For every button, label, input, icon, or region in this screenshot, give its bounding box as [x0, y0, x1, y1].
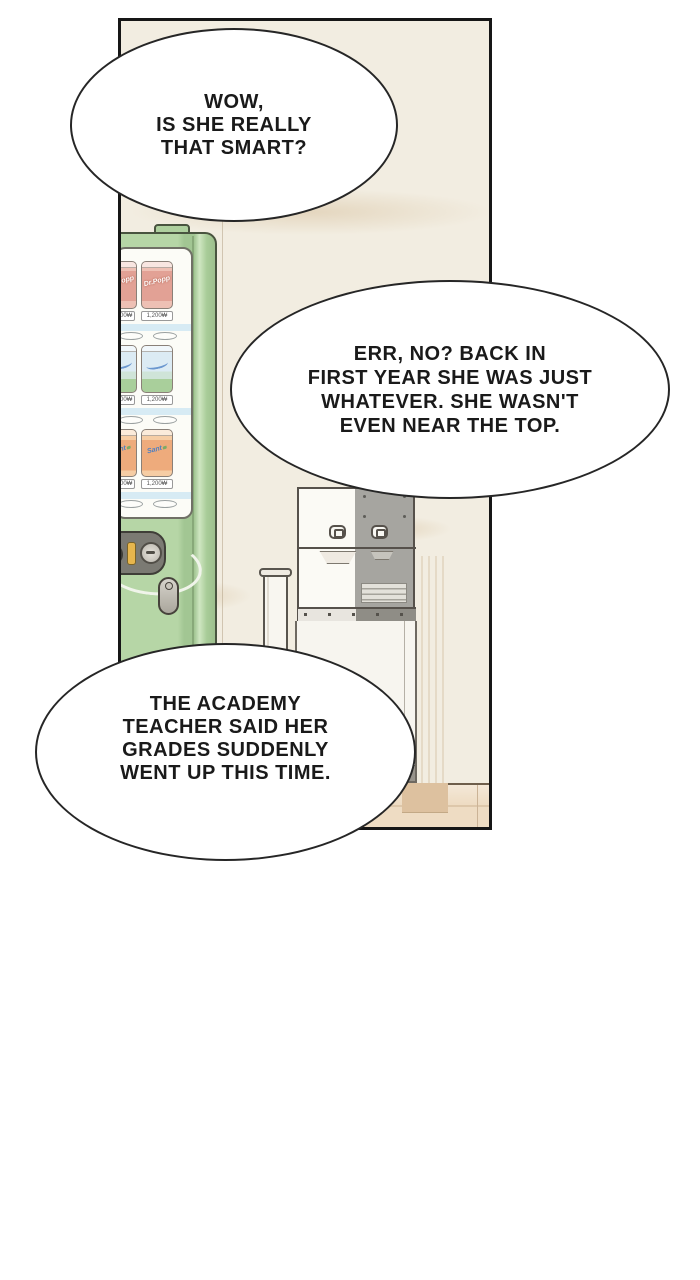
- vending-row-2: 1,200₩ 1,200₩: [118, 345, 191, 427]
- dispense-button-right: [371, 525, 388, 539]
- soda-can: Dr.Popp: [141, 261, 173, 309]
- dispenser-label-sticker: [361, 583, 407, 603]
- can-script-decoration: [145, 358, 168, 371]
- speech-bubble: ERR, NO? BACK IN FIRST YEAR SHE WAS JUST…: [230, 280, 670, 499]
- cup-tube-cap: [259, 568, 292, 577]
- bubble-line: THE ACADEMY: [150, 693, 301, 716]
- speech-bubble: WOW, IS SHE REALLY THAT SMART?: [70, 28, 398, 222]
- coin-panel: [118, 531, 166, 575]
- water-dispenser: [297, 487, 415, 621]
- can-brand-label: Dr.Popp: [118, 274, 136, 288]
- bubble-line: THAT SMART?: [161, 137, 307, 160]
- bubble-line: WHATEVER. SHE WASN'T: [321, 390, 579, 414]
- can-brand-label: Sant: [118, 442, 136, 456]
- shelf-slot: [119, 416, 143, 424]
- dispense-button-left: [329, 525, 346, 539]
- bill-slot: [118, 546, 123, 563]
- shelf-glass-strip: [118, 408, 191, 415]
- vending-machine: Dr.Popp Dr.Popp 1,200₩ 1,200₩ 1,200₩ 1,2…: [118, 232, 217, 681]
- can-script-decoration: [118, 358, 133, 371]
- price-tag: 1,200₩: [118, 311, 135, 321]
- screw-dot: [363, 495, 366, 498]
- spout-tray-left: [317, 551, 359, 564]
- drip-tray: [298, 607, 416, 621]
- price-tag: 1,200₩: [141, 311, 173, 321]
- bubble-line: FIRST YEAR SHE WAS JUST: [308, 366, 593, 390]
- shelf-slot: [153, 416, 177, 424]
- speech-bubble: THE ACADEMY TEACHER SAID HER GRADES SUDD…: [35, 643, 416, 861]
- soda-can: Dr.Popp: [118, 261, 137, 309]
- price-tag: 1,200₩: [118, 395, 135, 405]
- price-tag: 1,200₩: [118, 479, 135, 489]
- dispenser-divider-line: [298, 547, 416, 549]
- soda-can: [141, 345, 173, 393]
- vending-row-1: Dr.Popp Dr.Popp 1,200₩ 1,200₩: [118, 261, 191, 343]
- pillar-base: [402, 783, 448, 813]
- screw-dot: [403, 515, 406, 518]
- bubble-line: WENT UP THIS TIME.: [120, 762, 331, 785]
- bubble-line: EVEN NEAR THE TOP.: [340, 414, 561, 438]
- coin-return-button: [140, 542, 162, 564]
- screw-dot: [363, 515, 366, 518]
- bubble-line: TEACHER SAID HER: [123, 716, 329, 739]
- soda-can: Sant: [118, 429, 137, 477]
- shelf-slot: [153, 332, 177, 340]
- shelf-glass-strip: [118, 324, 191, 331]
- bubble-line: IS SHE REALLY: [156, 114, 312, 137]
- coin-slot: [127, 542, 136, 565]
- price-tag: 1,200₩: [141, 395, 173, 405]
- bubble-line: GRADES SUDDENLY: [122, 739, 329, 762]
- soda-can: [118, 345, 137, 393]
- lock-handle: [158, 577, 179, 615]
- floor-plank-seam: [477, 785, 478, 830]
- wall-pillar: [421, 556, 445, 783]
- shelf-slot: [119, 332, 143, 340]
- soda-can: Sant: [141, 429, 173, 477]
- shelf-glass-strip: [118, 492, 191, 499]
- can-brand-label: Sant: [142, 442, 173, 456]
- bubble-line: WOW,: [204, 91, 264, 114]
- price-tag: 1,200₩: [141, 479, 173, 489]
- spout-tray-right: [369, 551, 395, 560]
- bubble-line: ERR, NO? BACK IN: [354, 342, 546, 366]
- cup-dispenser-tube: [263, 572, 288, 656]
- shelf-slot: [153, 500, 177, 508]
- shelf-slot: [119, 500, 143, 508]
- vending-row-3: Sant Sant 1,200₩ 1,200₩: [118, 429, 191, 511]
- can-brand-label: Dr.Popp: [142, 274, 173, 288]
- vending-machine-window: Dr.Popp Dr.Popp 1,200₩ 1,200₩ 1,200₩ 1,2…: [118, 247, 193, 519]
